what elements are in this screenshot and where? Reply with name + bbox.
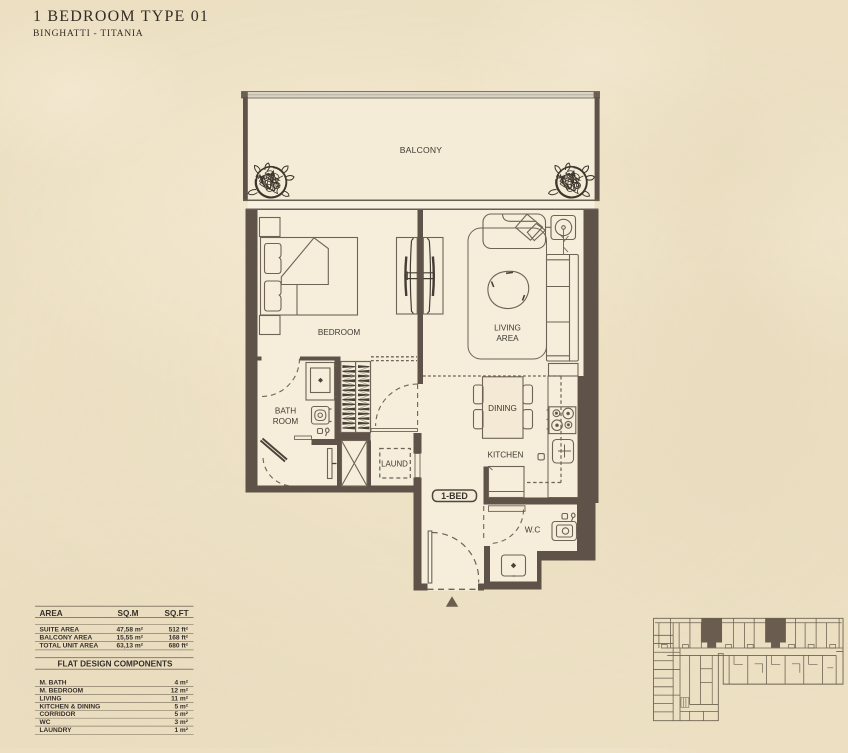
svg-text:BEDROOM: BEDROOM xyxy=(318,328,360,337)
svg-text:W.C: W.C xyxy=(525,526,541,535)
svg-text:LAUND: LAUND xyxy=(381,460,408,469)
svg-text:LAUNDRY: LAUNDRY xyxy=(40,727,73,734)
svg-text:680 ft²: 680 ft² xyxy=(169,643,189,650)
svg-text:5 m²: 5 m² xyxy=(174,711,188,718)
svg-text:12 m²: 12 m² xyxy=(171,688,189,695)
svg-text:512 ft²: 512 ft² xyxy=(169,626,189,633)
svg-text:BALCONY: BALCONY xyxy=(400,145,443,155)
svg-text:1-BED: 1-BED xyxy=(441,491,468,501)
svg-text:5 m²: 5 m² xyxy=(174,703,188,710)
svg-text:M. BATH: M. BATH xyxy=(40,680,67,687)
svg-text:KITCHEN & DINING: KITCHEN & DINING xyxy=(40,703,101,710)
svg-text:SQ.M: SQ.M xyxy=(118,609,139,618)
svg-text:AREA: AREA xyxy=(40,609,63,618)
svg-text:TOTAL UNIT AREA: TOTAL UNIT AREA xyxy=(40,643,99,650)
svg-text:168 ft²: 168 ft² xyxy=(169,635,189,642)
svg-text:1 BEDROOM TYPE 01: 1 BEDROOM TYPE 01 xyxy=(33,8,209,25)
svg-text:63,13 m²: 63,13 m² xyxy=(117,643,144,650)
svg-text:1 m²: 1 m² xyxy=(174,727,188,734)
svg-text:SUITE AREA: SUITE AREA xyxy=(40,626,80,633)
svg-text:WC: WC xyxy=(40,719,51,726)
svg-text:47,58 m²: 47,58 m² xyxy=(117,626,144,633)
svg-text:LIVING: LIVING xyxy=(494,324,521,333)
svg-text:BATH: BATH xyxy=(275,407,296,416)
svg-text:SQ.FT: SQ.FT xyxy=(165,609,189,618)
svg-text:DINING: DINING xyxy=(488,404,517,413)
svg-text:11 m²: 11 m² xyxy=(171,695,189,702)
svg-text:3 m²: 3 m² xyxy=(174,719,188,726)
svg-text:AREA: AREA xyxy=(496,334,519,343)
svg-text:4 m²: 4 m² xyxy=(174,680,188,687)
svg-text:KITCHEN: KITCHEN xyxy=(488,451,524,460)
svg-text:ROOM: ROOM xyxy=(273,417,299,426)
svg-text:M. BEDROOM: M. BEDROOM xyxy=(40,688,84,695)
svg-text:FLAT DESIGN COMPONENTS: FLAT DESIGN COMPONENTS xyxy=(58,660,173,669)
svg-text:LIVING: LIVING xyxy=(40,695,62,702)
svg-text:CORRIDOR: CORRIDOR xyxy=(40,711,76,718)
svg-text:BALCONY AREA: BALCONY AREA xyxy=(40,635,93,642)
svg-text:15,55 m²: 15,55 m² xyxy=(117,635,144,642)
svg-text:BINGHATTI - TITANIA: BINGHATTI - TITANIA xyxy=(33,28,143,39)
